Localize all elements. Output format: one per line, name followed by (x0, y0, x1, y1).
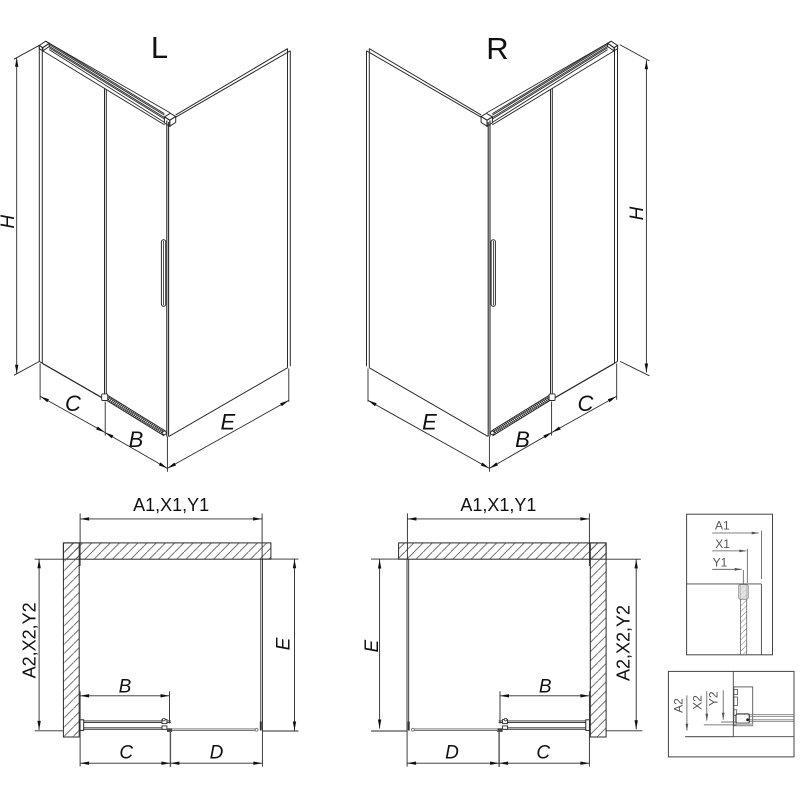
svg-text:A2,X2,Y2: A2,X2,Y2 (20, 602, 40, 678)
svg-text:E: E (362, 640, 383, 653)
svg-text:X2: X2 (690, 695, 704, 710)
svg-text:E: E (422, 410, 437, 435)
svg-text:A1,X1,Y1: A1,X1,Y1 (460, 495, 536, 515)
svg-text:A1: A1 (715, 519, 730, 533)
svg-text:D: D (445, 743, 459, 764)
svg-text:C: C (119, 743, 133, 764)
svg-text:Y1: Y1 (713, 555, 728, 569)
svg-text:A2: A2 (672, 698, 686, 713)
svg-text:X1: X1 (715, 537, 730, 551)
svg-text:E: E (220, 410, 235, 435)
svg-text:H: H (627, 206, 648, 220)
svg-text:D: D (210, 743, 224, 764)
svg-text:B: B (539, 676, 552, 697)
svg-text:H: H (0, 215, 19, 229)
svg-text:A2,X2,Y2: A2,X2,Y2 (614, 605, 634, 681)
svg-text:R: R (486, 31, 508, 66)
svg-text:A1,X1,Y1: A1,X1,Y1 (133, 495, 209, 515)
svg-text:B: B (119, 676, 132, 697)
svg-text:Y2: Y2 (706, 691, 720, 706)
svg-text:B: B (129, 427, 144, 452)
svg-text:L: L (151, 30, 168, 65)
svg-text:E: E (274, 637, 295, 650)
svg-text:C: C (65, 391, 81, 416)
svg-text:B: B (515, 427, 530, 452)
svg-text:C: C (578, 391, 594, 416)
svg-text:C: C (536, 743, 550, 764)
